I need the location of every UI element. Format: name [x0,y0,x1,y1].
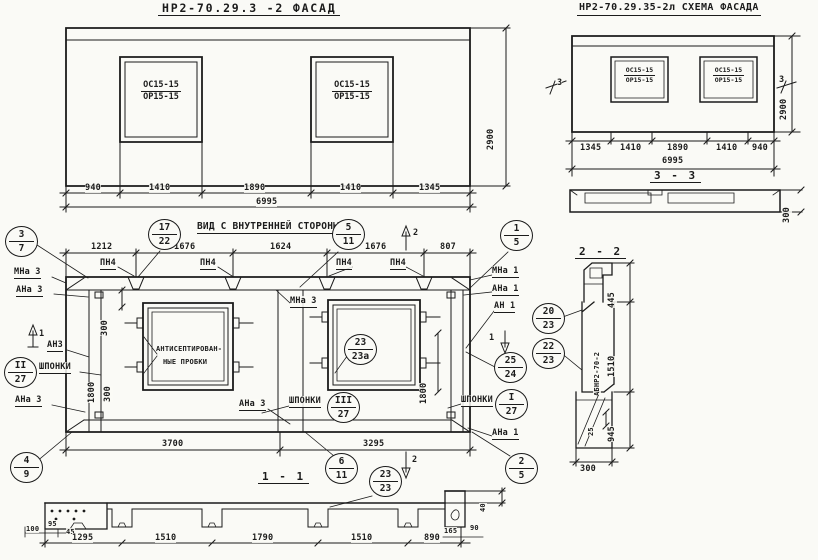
marker-top: 20 [536,304,561,319]
dim-label: 1345 [580,143,601,153]
dim-label-1510: 1510 [607,356,617,377]
inner-view-title: ВИД С ВНУТРЕННЕЙ СТОРОНЫ [197,222,339,234]
section-1-1-title: 1 - 1 [258,472,309,484]
dim-label: 1410 [620,143,641,153]
marker-bottom: 23 [533,319,564,332]
marker-bottom: 23а [345,350,376,363]
window-mark-bottom: ОР15-15 [128,92,194,103]
mna3-label: МНа 3 [14,267,41,279]
scheme-title: НР2-70.29.35-2л СХЕМА ФАСАДА [577,3,761,16]
axis-marker-23-23: 23 23 [369,466,402,497]
dim-label: 940 [752,143,768,153]
window-mark-bottom: ОР15-15 [613,76,666,85]
marker-top: 1 [504,221,529,236]
axis-marker-6-11: 6 11 [325,453,358,484]
window-mark-top: ОС15-15 [141,80,181,92]
window-mark-bottom: ОР15-15 [319,92,385,103]
axis-marker-20-23: 20 23 [532,303,565,334]
dim-label: 3700 [162,439,183,449]
profile-height-label: 300 [782,207,792,223]
facade-title: НР2-70.29.3 -2 ФАСАД [158,3,340,16]
plugs-note-line1: АНТИСЕПТИРОВАН- [156,345,222,353]
shponki-label: ШПОНКИ [461,395,493,407]
dim-label-300: 300 [100,320,110,336]
window-mark: ОС15-15 ОР15-15 [128,80,194,103]
marker-bottom: 5 [501,236,532,249]
dim-label: 1624 [270,242,291,252]
dim-total-label: 6995 [662,156,683,166]
dim-label: 1510 [155,533,176,543]
marker-bottom: 24 [495,368,526,381]
marker-top: I [499,390,524,405]
marker-top: 22 [536,339,561,354]
dim-label: 1410 [149,183,170,193]
window-mark-bottom: ОР15-15 [702,76,755,85]
dim-label: 1295 [72,533,93,543]
axis-marker-2-5: 2 5 [505,453,538,484]
an1-label: АН 1 [494,301,515,313]
cut-mark-2: 2 [412,455,417,465]
dim-label-40: 40 [479,503,487,512]
window-mark: ОС15-15 ОР15-15 [319,80,385,103]
pn4-label: ПН4 [390,258,406,270]
shponki-label: ШПОНКИ [289,396,321,408]
window-mark-top: ОС15-15 [332,80,372,92]
dim-label: 1790 [252,533,273,543]
ana1-label: АНа 1 [492,284,519,296]
marker-bottom: 23 [533,354,564,367]
marker-bottom: 11 [333,235,364,248]
pn4-label: ПН4 [200,258,216,270]
element-mark: АБНР2-70-2 [593,352,601,396]
axis-marker-III-27: III 27 [327,392,360,423]
dim-label: 165 [444,527,457,535]
an3-label: АН3 [47,340,63,352]
marker-top: 23 [348,335,373,350]
dim-label-1800: 1800 [419,383,429,404]
dim-height-label: 2900 [779,99,789,120]
window-mark-top: ОС15-15 [624,66,655,76]
dim-label-300: 300 [580,464,596,474]
dim-label: 940 [85,183,101,193]
dim-label-1800: 1800 [87,382,97,403]
dim-label: 1890 [244,183,265,193]
marker-top: II [8,358,33,373]
plugs-note-line2: НЫЕ ПРОБКИ [163,358,207,366]
mna3-label: МНа 3 [290,296,317,308]
marker-bottom: 22 [149,235,180,248]
axis-marker-3-7: 3 7 [5,226,38,257]
cut-mark-1: 1 [39,329,44,339]
ana3-label: АНа 3 [16,285,43,297]
dim-label: 90 [470,524,479,532]
dim-label: 100 [26,525,39,533]
section-2-2-title: 2 - 2 [575,247,626,259]
dim-label: 1345 [419,183,440,193]
marker-bottom: 9 [11,468,42,481]
marker-top: 23 [373,467,398,482]
marker-bottom: 7 [6,242,37,255]
marker-bottom: 27 [496,405,527,418]
dim-label-25: 25 [587,427,595,436]
ana3-label: АНа 3 [239,399,266,411]
axis-marker-I-27: I 27 [495,389,528,420]
window-mark-top: ОС15-15 [713,66,744,76]
marker-top: 25 [498,353,523,368]
section-3-3-title: 3 - 3 [650,171,701,183]
dim-height-label: 2900 [486,129,496,150]
cut-mark-2: 2 [413,228,418,238]
dim-label-945: 945 [607,426,617,442]
drawing-sheet: НР2-70.29.3 -2 ФАСАД НР2-70.29.35-2л СХЕ… [0,0,818,560]
marker-bottom: 11 [326,469,357,482]
marker-top: III [331,393,356,408]
drawing-linework [0,0,818,560]
dim-label: 1890 [667,143,688,153]
axis-marker-23-23a: 23 23а [344,334,377,365]
marker-top: 17 [152,220,177,235]
axis-marker-17-22: 17 22 [148,219,181,250]
marker-bottom: 27 [5,373,36,386]
shponki-label: ШПОНКИ [39,362,71,374]
axis-marker-1-5: 1 5 [500,220,533,251]
axis-marker-25-24: 25 24 [494,352,527,383]
dim-label: 890 [424,533,440,543]
dim-label-445: 445 [607,292,617,308]
cut-mark-3: 3 [779,75,784,85]
marker-top: 6 [329,454,354,469]
pn4-label: ПН4 [336,258,352,270]
axis-marker-II-27: II 27 [4,357,37,388]
cut-mark-3: 3 [557,78,562,88]
marker-top: 5 [336,220,361,235]
marker-bottom: 23 [370,482,401,495]
dim-total-label: 6995 [256,197,277,207]
dim-label: 807 [440,242,456,252]
marker-bottom: 27 [328,408,359,421]
pn4-label: ПН4 [100,258,116,270]
dim-label: 1510 [351,533,372,543]
ana1-label: АНа 1 [492,428,519,440]
dim-label: 3295 [363,439,384,449]
ana3-label: АНа 3 [15,395,42,407]
window-mark: ОС15-15 ОР15-15 [613,66,666,85]
cut-mark-1: 1 [489,333,494,343]
axis-marker-4-9: 4 9 [10,452,43,483]
marker-top: 2 [509,454,534,469]
dim-label: 1410 [340,183,361,193]
marker-top: 4 [14,453,39,468]
marker-top: 3 [9,227,34,242]
axis-marker-22-23: 22 23 [532,338,565,369]
dim-label: 1212 [91,242,112,252]
marker-bottom: 5 [506,469,537,482]
mna1-label: МНа 1 [492,266,519,278]
axis-marker-5-11: 5 11 [332,219,365,250]
dim-label: 95 [48,520,57,528]
window-mark: ОС15-15 ОР15-15 [702,66,755,85]
dim-label-300: 300 [103,386,113,402]
dim-label: 1676 [365,242,386,252]
dim-label: 1410 [716,143,737,153]
